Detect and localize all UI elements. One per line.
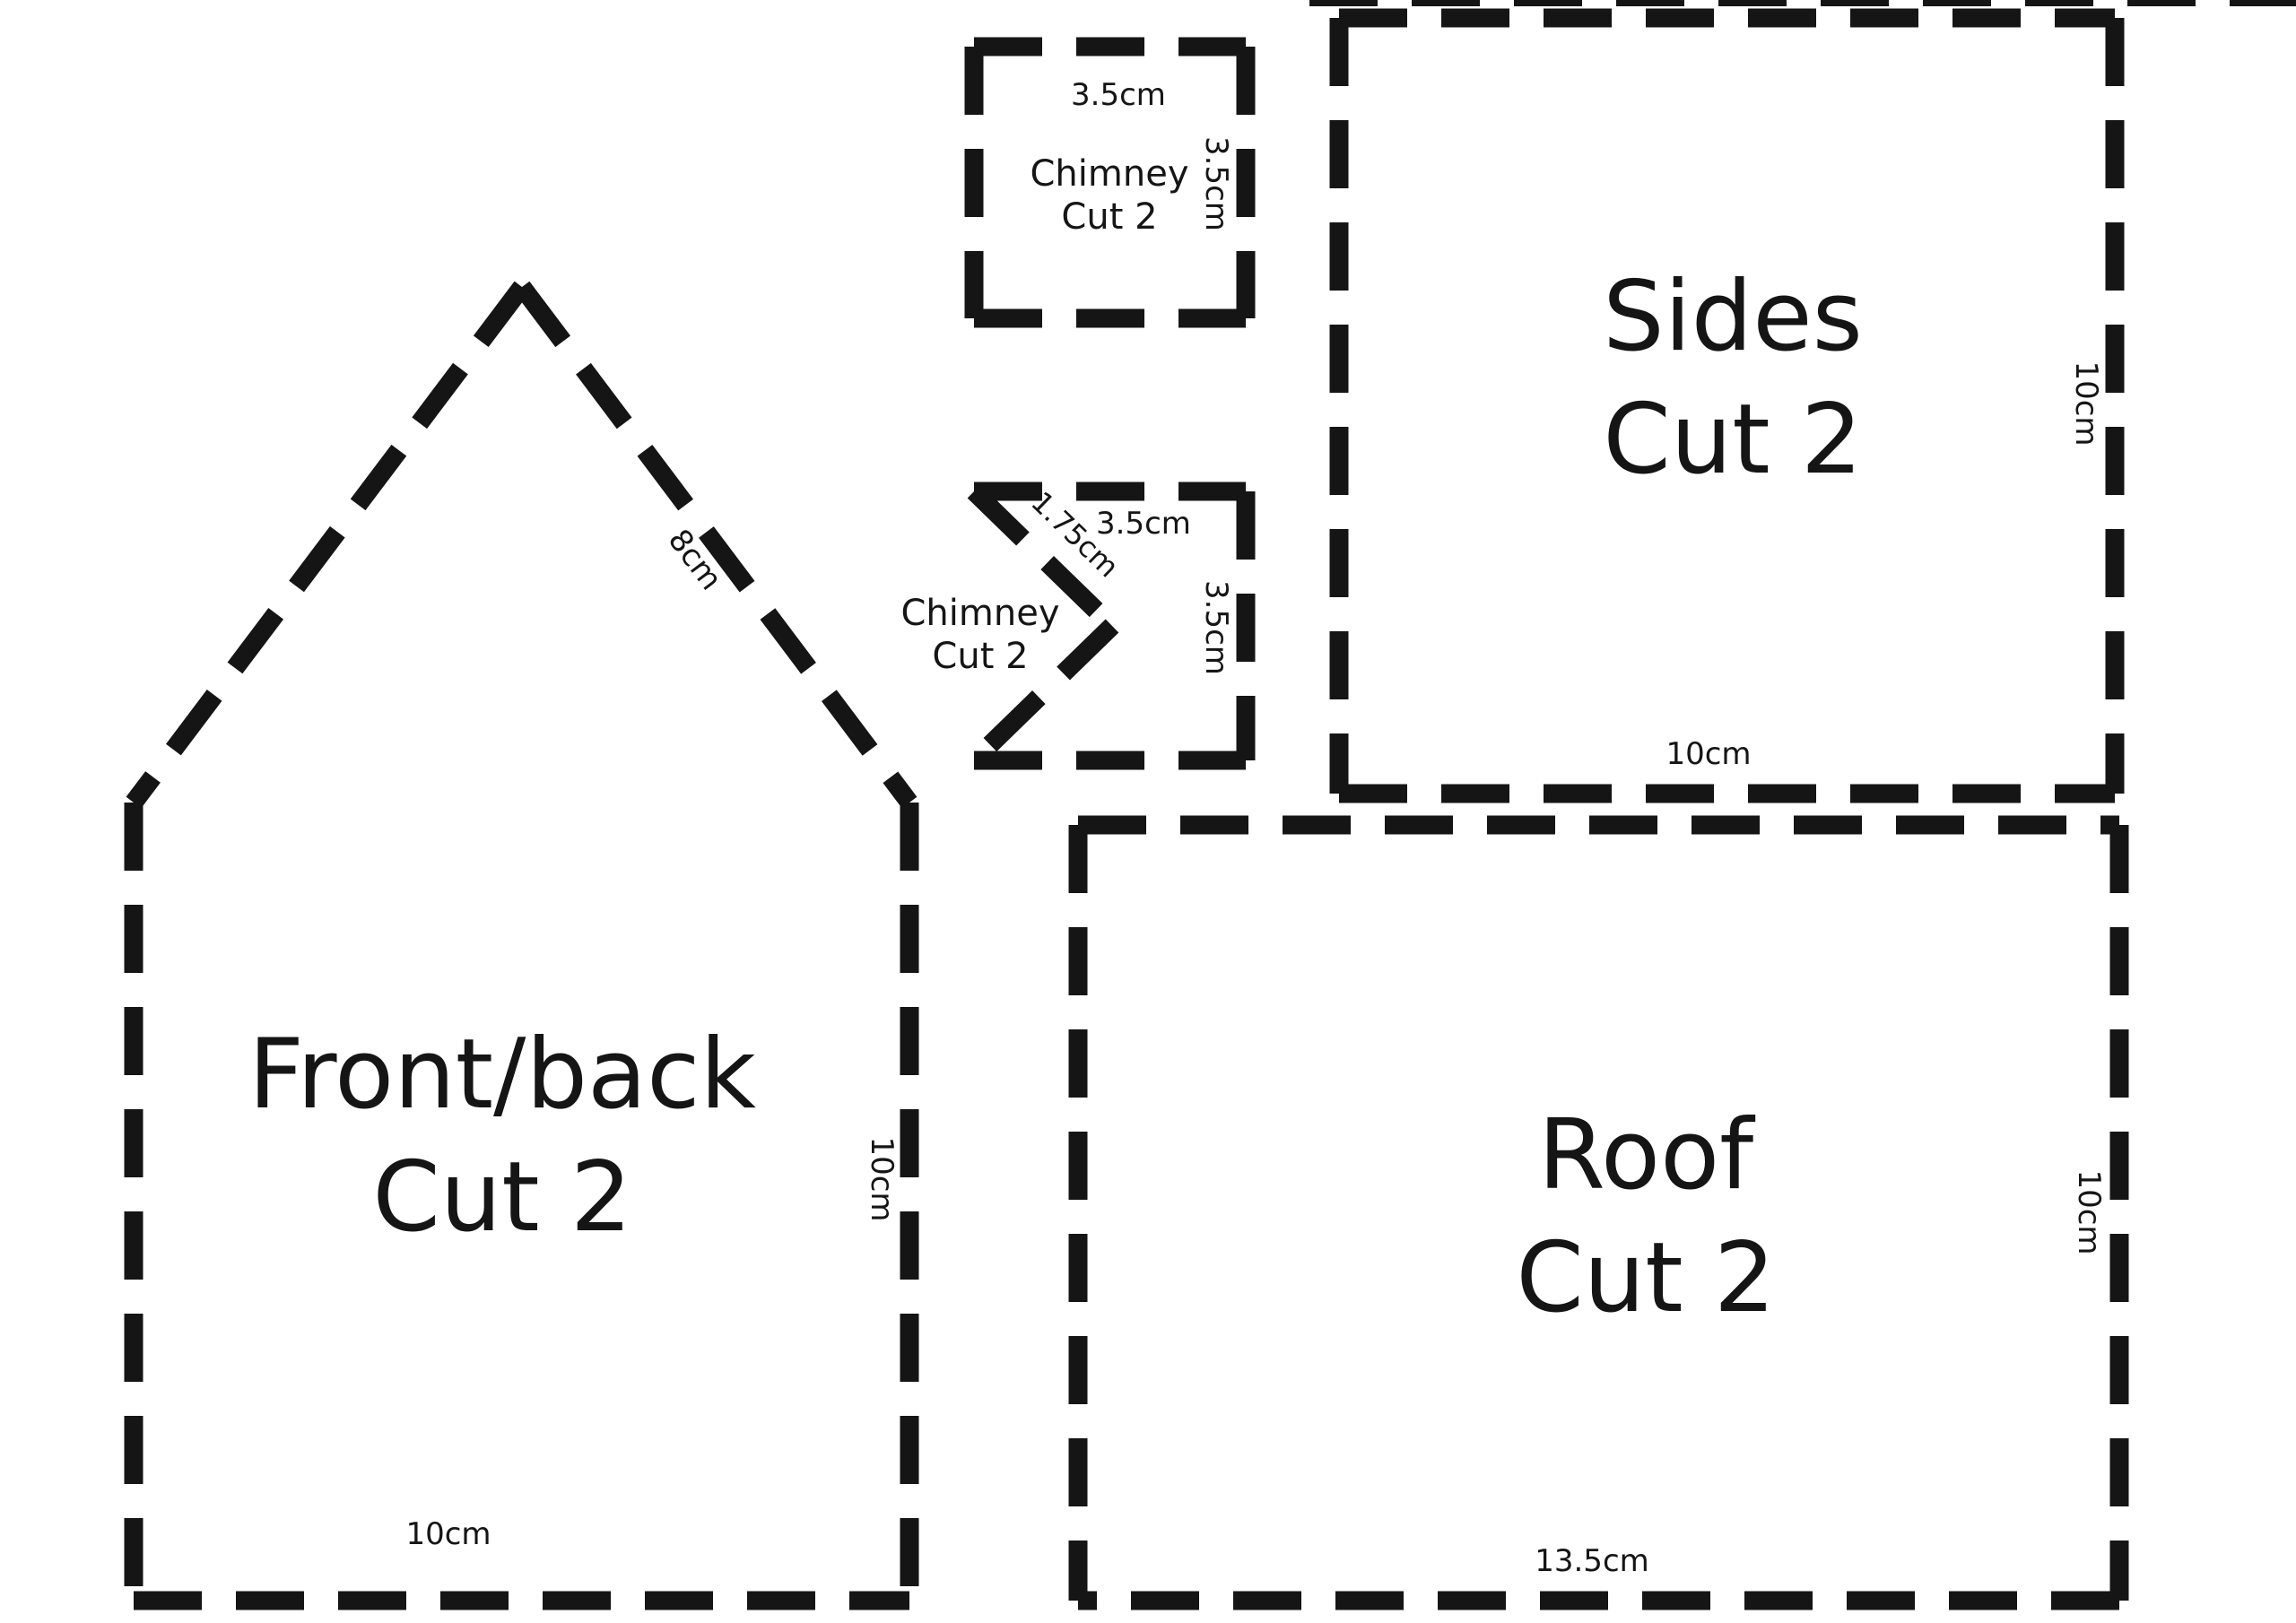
front-back-label-line2: Cut 2 xyxy=(372,1141,631,1254)
roof-piece: Roof Cut 2 10cm 13.5cm xyxy=(1078,825,2119,1601)
roof-right-dimension: 10cm xyxy=(2071,1169,2107,1254)
front-back-bottom-dimension: 10cm xyxy=(405,1516,491,1552)
pattern-canvas: Front/back Cut 2 8cm 10cm 10cm Sides Cut… xyxy=(0,0,2296,1623)
front-back-label-line1: Front/back xyxy=(248,1019,757,1131)
chimney-square-piece: 3.5cm 3.5cm Chimney Cut 2 xyxy=(974,47,1246,318)
chimney-notched-piece: 3.5cm 1.75cm 3.5cm Chimney Cut 2 xyxy=(901,485,1247,760)
sides-label-line2: Cut 2 xyxy=(1603,384,1862,496)
chimney-square-top-dimension: 3.5cm xyxy=(1071,77,1166,113)
chimney-square-label-line1: Chimney xyxy=(1031,153,1189,195)
chimney-notched-right-dimension: 3.5cm xyxy=(1198,580,1234,675)
chimney-square-right-dimension: 3.5cm xyxy=(1198,136,1234,231)
chimney-notched-top-dimension: 3.5cm xyxy=(1096,506,1191,542)
chimney-square-label-line2: Cut 2 xyxy=(1061,196,1157,238)
pattern-sheet: Front/back Cut 2 8cm 10cm 10cm Sides Cut… xyxy=(0,0,2296,1623)
sides-right-dimension: 10cm xyxy=(2068,360,2104,446)
front-back-right-dimension: 10cm xyxy=(864,1136,900,1221)
sides-piece: Sides Cut 2 10cm 10cm xyxy=(1339,18,2115,794)
front-back-left-slope-cut-line xyxy=(134,287,522,803)
front-back-right-slope-cut-line xyxy=(522,287,909,803)
front-back-piece: Front/back Cut 2 8cm 10cm 10cm xyxy=(134,287,909,1601)
roof-bottom-dimension: 13.5cm xyxy=(1535,1543,1649,1579)
chimney-notched-label-line1: Chimney xyxy=(901,593,1060,634)
sides-bottom-dimension: 10cm xyxy=(1665,736,1751,772)
roof-label-line1: Roof xyxy=(1538,1099,1756,1211)
roof-label-line2: Cut 2 xyxy=(1516,1222,1775,1334)
sides-label-line1: Sides xyxy=(1603,261,1863,373)
chimney-notched-label-line2: Cut 2 xyxy=(932,636,1028,677)
